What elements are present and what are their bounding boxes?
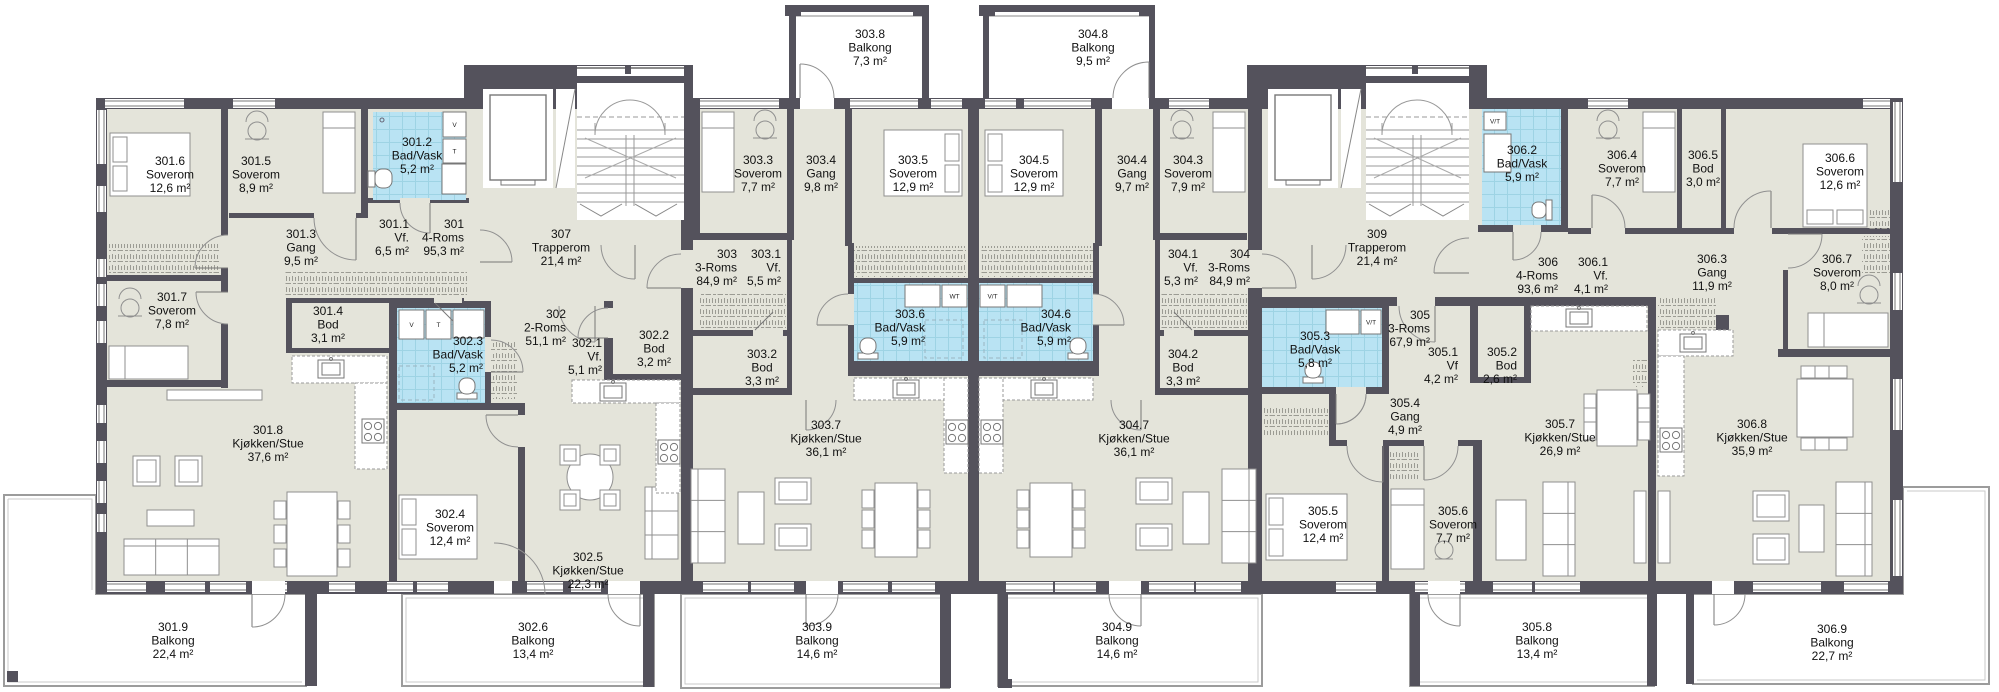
svg-text:4,9 m²: 4,9 m² (1388, 423, 1422, 437)
svg-text:302.6: 302.6 (518, 620, 548, 634)
svg-text:Balkong: Balkong (848, 41, 891, 55)
svg-text:84,9 m²: 84,9 m² (696, 274, 737, 288)
svg-text:2-Roms: 2-Roms (524, 321, 566, 335)
svg-text:302: 302 (546, 307, 566, 321)
svg-text:V: V (452, 122, 457, 129)
svg-text:Vf.: Vf. (394, 231, 409, 245)
svg-text:14,6 m²: 14,6 m² (1097, 647, 1138, 661)
svg-text:Bod: Bod (317, 318, 338, 332)
svg-text:Kjøkken/Stue: Kjøkken/Stue (1524, 431, 1596, 445)
svg-text:3,3 m²: 3,3 m² (1166, 374, 1200, 388)
svg-text:26,9 m²: 26,9 m² (1540, 444, 1581, 458)
svg-text:Bad/Vask: Bad/Vask (875, 321, 926, 335)
svg-text:V: V (409, 322, 414, 329)
svg-text:304: 304 (1230, 247, 1250, 261)
svg-text:12,6 m²: 12,6 m² (150, 181, 191, 195)
svg-text:Soverom: Soverom (889, 167, 937, 181)
svg-text:301.8: 301.8 (253, 423, 283, 437)
svg-text:303.5: 303.5 (898, 153, 928, 167)
svg-text:9,7 m²: 9,7 m² (1115, 180, 1149, 194)
svg-text:37,6 m²: 37,6 m² (248, 450, 289, 464)
svg-text:309: 309 (1367, 227, 1387, 241)
svg-text:4-Roms: 4-Roms (1516, 269, 1558, 283)
svg-text:Balkong: Balkong (1515, 634, 1558, 648)
svg-text:302.2: 302.2 (639, 328, 669, 342)
svg-text:Soverom: Soverom (1010, 167, 1058, 181)
svg-text:303.7: 303.7 (811, 418, 841, 432)
svg-text:Gang: Gang (1390, 410, 1419, 424)
svg-text:11,9 m²: 11,9 m² (1692, 279, 1732, 293)
svg-text:306: 306 (1538, 255, 1558, 269)
svg-text:Bod: Bod (643, 342, 664, 356)
svg-text:36,1 m²: 36,1 m² (1114, 445, 1155, 459)
svg-text:301.9: 301.9 (158, 620, 188, 634)
svg-text:304.2: 304.2 (1168, 347, 1198, 361)
svg-text:12,4 m²: 12,4 m² (1303, 531, 1344, 545)
svg-text:301.7: 301.7 (157, 290, 187, 304)
svg-text:305.7: 305.7 (1545, 417, 1575, 431)
svg-text:303.9: 303.9 (802, 620, 832, 634)
svg-text:6,5 m²: 6,5 m² (375, 244, 409, 258)
svg-text:301.4: 301.4 (313, 304, 343, 318)
svg-text:Soverom: Soverom (232, 168, 280, 182)
svg-text:7,7 m²: 7,7 m² (1605, 175, 1639, 189)
svg-text:302.5: 302.5 (573, 550, 603, 564)
svg-text:93,6 m²: 93,6 m² (1517, 282, 1558, 296)
svg-text:21,4 m²: 21,4 m² (1357, 254, 1398, 268)
svg-text:Soverom: Soverom (146, 168, 194, 182)
svg-text:305.8: 305.8 (1522, 620, 1552, 634)
svg-text:9,8 m²: 9,8 m² (804, 180, 838, 194)
svg-text:305.2: 305.2 (1487, 345, 1517, 359)
svg-text:303.4: 303.4 (806, 153, 836, 167)
svg-text:36,1 m²: 36,1 m² (806, 445, 847, 459)
svg-text:Bod: Bod (1496, 359, 1517, 373)
svg-text:5,2 m²: 5,2 m² (400, 162, 434, 176)
svg-text:Gang: Gang (1697, 266, 1726, 280)
svg-text:3-Roms: 3-Roms (1388, 322, 1430, 336)
svg-text:8,9 m²: 8,9 m² (239, 181, 273, 195)
svg-text:Kjøkken/Stue: Kjøkken/Stue (790, 432, 862, 446)
svg-text:306.3: 306.3 (1697, 252, 1727, 266)
svg-text:304.8: 304.8 (1078, 27, 1108, 41)
svg-text:Soverom: Soverom (426, 521, 474, 535)
svg-text:Balkong: Balkong (1810, 636, 1853, 650)
svg-text:304.1: 304.1 (1168, 247, 1198, 261)
svg-text:Bod: Bod (1692, 162, 1713, 176)
svg-text:Bod: Bod (1172, 361, 1193, 375)
svg-text:V/T: V/T (987, 294, 997, 301)
svg-text:Soverom: Soverom (1164, 167, 1212, 181)
svg-text:Vf.: Vf. (587, 350, 602, 364)
svg-text:304.5: 304.5 (1019, 153, 1049, 167)
svg-text:Bad/Vask: Bad/Vask (1021, 321, 1072, 335)
svg-text:35,9 m²: 35,9 m² (1732, 444, 1773, 458)
svg-text:67,9 m²: 67,9 m² (1389, 335, 1430, 349)
svg-text:3,3 m²: 3,3 m² (745, 374, 779, 388)
svg-text:302.4: 302.4 (435, 507, 465, 521)
svg-text:305.5: 305.5 (1308, 504, 1338, 518)
svg-text:Bad/Vask: Bad/Vask (433, 348, 484, 362)
svg-text:T: T (437, 322, 441, 329)
svg-text:13,4 m²: 13,4 m² (513, 647, 554, 661)
svg-text:304.3: 304.3 (1173, 153, 1203, 167)
svg-text:Kjøkken/Stue: Kjøkken/Stue (232, 437, 304, 451)
svg-text:Balkong: Balkong (1095, 634, 1138, 648)
svg-text:Gang: Gang (806, 167, 835, 181)
svg-text:Soverom: Soverom (734, 167, 782, 181)
svg-text:Balkong: Balkong (795, 634, 838, 648)
svg-text:5,9 m²: 5,9 m² (891, 334, 925, 348)
svg-text:9,5 m²: 9,5 m² (284, 254, 318, 268)
svg-text:Bad/Vask: Bad/Vask (1497, 157, 1548, 171)
svg-text:3,0 m²: 3,0 m² (1686, 175, 1720, 189)
svg-text:5,1 m²: 5,1 m² (568, 363, 602, 377)
svg-text:12,4 m²: 12,4 m² (430, 534, 471, 548)
svg-text:Bad/Vask: Bad/Vask (1290, 343, 1341, 357)
svg-text:12,9 m²: 12,9 m² (893, 180, 934, 194)
svg-text:Soverom: Soverom (1813, 266, 1861, 280)
svg-text:Vf.: Vf. (1593, 269, 1608, 283)
svg-text:301: 301 (444, 217, 464, 231)
svg-text:V/T: V/T (1366, 320, 1376, 327)
svg-text:306.9: 306.9 (1817, 622, 1847, 636)
svg-text:7,7 m²: 7,7 m² (741, 180, 775, 194)
svg-text:Balkong: Balkong (511, 634, 554, 648)
svg-text:7,9 m²: 7,9 m² (1171, 180, 1205, 194)
svg-text:Bod: Bod (751, 361, 772, 375)
svg-text:5,3 m²: 5,3 m² (1164, 274, 1198, 288)
svg-text:Kjøkken/Stue: Kjøkken/Stue (1098, 432, 1170, 446)
svg-text:302.3: 302.3 (453, 334, 483, 348)
svg-text:305.6: 305.6 (1438, 504, 1468, 518)
svg-text:304.4: 304.4 (1117, 153, 1147, 167)
svg-text:5,8 m²: 5,8 m² (1298, 356, 1332, 370)
svg-text:12,9 m²: 12,9 m² (1014, 180, 1055, 194)
svg-text:2,6 m²: 2,6 m² (1483, 372, 1517, 386)
svg-text:305.4: 305.4 (1390, 396, 1420, 410)
svg-text:301.6: 301.6 (155, 154, 185, 168)
svg-text:V/T: V/T (1490, 119, 1500, 126)
svg-text:Balkong: Balkong (151, 634, 194, 648)
svg-text:303.8: 303.8 (855, 27, 885, 41)
svg-text:301.1: 301.1 (379, 217, 409, 231)
svg-text:5,9 m²: 5,9 m² (1505, 170, 1539, 184)
svg-text:304.9: 304.9 (1102, 620, 1132, 634)
svg-text:4,2 m²: 4,2 m² (1424, 372, 1458, 386)
svg-text:21,4 m²: 21,4 m² (541, 254, 582, 268)
svg-text:306.6: 306.6 (1825, 151, 1855, 165)
svg-text:95,3 m²: 95,3 m² (423, 244, 464, 258)
svg-text:4-Roms: 4-Roms (422, 231, 464, 245)
svg-text:3-Roms: 3-Roms (1208, 261, 1250, 275)
svg-text:301.5: 301.5 (241, 154, 271, 168)
svg-text:307: 307 (551, 227, 571, 241)
svg-text:9,5 m²: 9,5 m² (1076, 54, 1110, 68)
svg-text:22,4 m²: 22,4 m² (153, 647, 194, 661)
svg-text:WT: WT (949, 294, 959, 301)
svg-text:7,7 m²: 7,7 m² (1436, 531, 1470, 545)
svg-text:306.5: 306.5 (1688, 148, 1718, 162)
svg-text:303.3: 303.3 (743, 153, 773, 167)
svg-text:Vf: Vf (1447, 359, 1459, 373)
svg-text:7,8 m²: 7,8 m² (155, 317, 189, 331)
svg-text:303.6: 303.6 (895, 307, 925, 321)
svg-text:T: T (453, 149, 457, 156)
svg-text:5,2 m²: 5,2 m² (449, 361, 483, 375)
svg-text:306.2: 306.2 (1507, 143, 1537, 157)
svg-text:304.7: 304.7 (1119, 418, 1149, 432)
svg-text:5,9 m²: 5,9 m² (1037, 334, 1071, 348)
svg-text:Balkong: Balkong (1071, 41, 1114, 55)
svg-text:Kjøkken/Stue: Kjøkken/Stue (552, 564, 624, 578)
svg-text:84,9 m²: 84,9 m² (1209, 274, 1250, 288)
svg-text:Soverom: Soverom (148, 304, 196, 318)
svg-text:305: 305 (1410, 308, 1430, 322)
svg-text:Soverom: Soverom (1598, 162, 1646, 176)
svg-text:Vf.: Vf. (1183, 261, 1198, 275)
svg-text:303: 303 (717, 247, 737, 261)
svg-text:Soverom: Soverom (1816, 165, 1864, 179)
svg-text:305.3: 305.3 (1300, 329, 1330, 343)
svg-text:13,4 m²: 13,4 m² (1517, 647, 1558, 661)
svg-text:Gang: Gang (286, 241, 315, 255)
svg-text:301.3: 301.3 (286, 227, 316, 241)
svg-text:Soverom: Soverom (1429, 518, 1477, 532)
svg-text:305.1: 305.1 (1428, 345, 1458, 359)
svg-text:Trapperom: Trapperom (532, 241, 590, 255)
svg-text:7,3 m²: 7,3 m² (853, 54, 887, 68)
svg-text:8,0 m²: 8,0 m² (1820, 279, 1854, 293)
svg-text:22,7 m²: 22,7 m² (1812, 649, 1853, 663)
svg-text:Bad/Vask: Bad/Vask (392, 149, 443, 163)
svg-text:306.4: 306.4 (1607, 148, 1637, 162)
svg-text:302.1: 302.1 (572, 336, 602, 350)
svg-text:Kjøkken/Stue: Kjøkken/Stue (1716, 431, 1788, 445)
svg-text:306.8: 306.8 (1737, 417, 1767, 431)
svg-text:3,1 m²: 3,1 m² (311, 331, 345, 345)
svg-text:5,5 m²: 5,5 m² (747, 274, 781, 288)
svg-text:303.2: 303.2 (747, 347, 777, 361)
svg-text:Gang: Gang (1117, 167, 1146, 181)
svg-text:4,1 m²: 4,1 m² (1574, 282, 1608, 296)
svg-text:12,6 m²: 12,6 m² (1820, 178, 1861, 192)
svg-text:14,6 m²: 14,6 m² (797, 647, 838, 661)
svg-text:3-Roms: 3-Roms (695, 261, 737, 275)
svg-text:304.6: 304.6 (1041, 307, 1071, 321)
svg-text:303.1: 303.1 (751, 247, 781, 261)
svg-text:306.1: 306.1 (1578, 255, 1608, 269)
svg-text:51,1 m²: 51,1 m² (525, 334, 566, 348)
svg-text:Trapperom: Trapperom (1348, 241, 1406, 255)
svg-text:Soverom: Soverom (1299, 518, 1347, 532)
svg-text:306.7: 306.7 (1822, 252, 1852, 266)
svg-text:3,2 m²: 3,2 m² (637, 355, 671, 369)
svg-text:301.2: 301.2 (402, 135, 432, 149)
svg-text:Vf.: Vf. (766, 261, 781, 275)
svg-text:22,3 m²: 22,3 m² (568, 577, 609, 591)
